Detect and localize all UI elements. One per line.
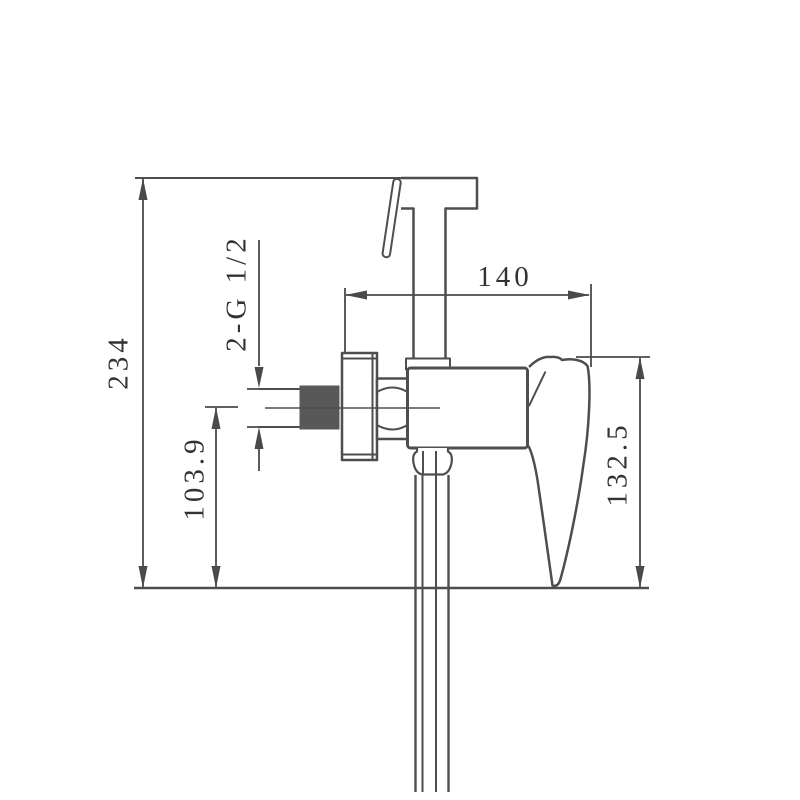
dimension-overall-height: 234 — [103, 178, 148, 588]
valve-body — [406, 359, 528, 449]
dimension-label-valve-height: 132.5 — [602, 421, 634, 506]
trigger-lever — [382, 178, 401, 257]
arrow-left-icon — [345, 291, 367, 300]
arrow-down-icon — [212, 566, 221, 588]
arrow-up-icon — [212, 407, 221, 429]
dimension-inlet-center-height: 103.9 — [179, 407, 238, 588]
sprayer-head-outline — [401, 178, 477, 359]
wall-flange — [342, 353, 377, 460]
dimension-width: 140 — [345, 261, 591, 367]
arrow-down-icon — [255, 367, 264, 388]
arrow-down-icon — [636, 566, 645, 588]
arrow-up-icon — [636, 357, 645, 379]
dimension-label-inlet-center-height: 103.9 — [179, 435, 211, 520]
hose-connector — [413, 448, 452, 475]
bidet-sprayer-technical-drawing: 234 103.9 2-G 1/2 140 132.5 — [0, 0, 800, 800]
arrow-down-icon — [139, 566, 148, 588]
sprayer-head-assembly — [382, 178, 477, 359]
technical-drawing-canvas: 234 103.9 2-G 1/2 140 132.5 — [0, 0, 800, 800]
dimension-label-overall-height: 234 — [103, 334, 135, 390]
arrow-up-icon — [255, 427, 264, 449]
control-lever — [529, 357, 590, 586]
dimension-label-thread-spec: 2-G 1/2 — [221, 234, 253, 351]
hose-assembly — [413, 448, 452, 792]
dimension-thread-spec: 2-G 1/2 — [221, 234, 275, 471]
arrow-right-icon — [568, 291, 590, 300]
dimension-label-width: 140 — [477, 261, 533, 293]
lever-outline — [529, 357, 590, 586]
arrow-up-icon — [139, 178, 148, 200]
